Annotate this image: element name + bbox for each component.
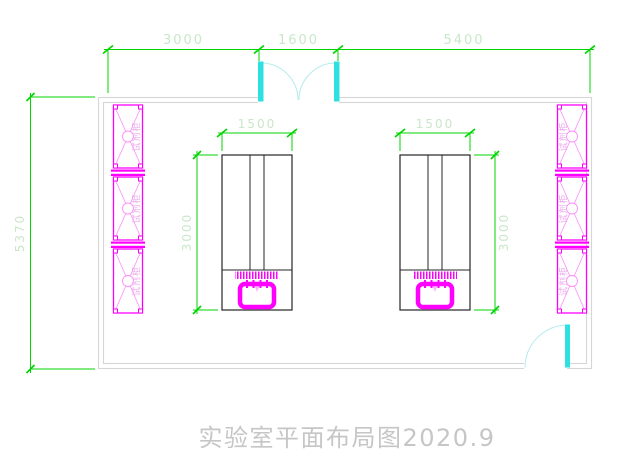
cabinet-label: 试剂柜 (558, 121, 570, 151)
cabinet-left-2: 试剂柜 (114, 177, 143, 240)
dimension-bench-left-depth: 3000 (180, 151, 218, 314)
dimension-bench-left-width: 1500 (217, 117, 297, 151)
cabinet-label: 试剂柜 (131, 193, 143, 223)
dimension-top: 3000 1600 5400 (103, 33, 595, 93)
cabinet-label: 试剂柜 (558, 193, 570, 223)
cabinet-label: 试剂柜 (131, 266, 143, 296)
dimension-label-bench-depth: 3000 (497, 213, 511, 252)
cabinet-right-3: 试剂柜 (558, 249, 587, 313)
cabinet-left-3: 试剂柜 (114, 249, 143, 313)
dimension-label-top-center: 1600 (278, 33, 319, 48)
cabinet-label: 试剂柜 (131, 121, 143, 151)
dimension-label-bench-width: 1500 (238, 117, 277, 131)
dimension-label-top-right: 5400 (443, 33, 484, 48)
dimension-bench-right-depth: 3000 (474, 151, 511, 314)
floor-plan-canvas: 试剂柜 试剂柜 试剂柜 (0, 0, 619, 469)
cabinet-right-1: 试剂柜 (558, 105, 587, 168)
cabinet-column-left: 试剂柜 试剂柜 试剂柜 (111, 105, 145, 313)
cabinet-right-2: 试剂柜 (558, 177, 587, 240)
door-leaf-right (335, 62, 340, 101)
cabinet-left-1: 试剂柜 (114, 105, 143, 168)
lab-bench-left (222, 155, 292, 310)
cabinet-column-right: 试剂柜 试剂柜 试剂柜 (555, 105, 589, 313)
door-swing-arc-right (299, 63, 336, 100)
dimension-left: 5370 (13, 93, 95, 373)
room-walls (99, 95, 592, 370)
dimension-label-bench-depth: 3000 (180, 213, 194, 252)
door-leaf-left (259, 62, 264, 101)
floor-plan-drawing: 试剂柜 试剂柜 试剂柜 (0, 0, 619, 469)
drawing-title: 实验室平面布局图2020.9 (199, 424, 496, 452)
lab-bench-right (400, 155, 470, 310)
dimension-bench-right-width: 1500 (395, 117, 475, 151)
cabinet-label: 试剂柜 (558, 266, 570, 296)
bottom-door-opening (524, 357, 567, 370)
door-leaf (566, 325, 570, 367)
dimension-label-left-wall: 5370 (13, 214, 27, 253)
dimension-label-top-left: 3000 (163, 33, 204, 48)
dimension-label-bench-width: 1500 (416, 117, 455, 131)
door-swing-arc-left (261, 63, 298, 100)
